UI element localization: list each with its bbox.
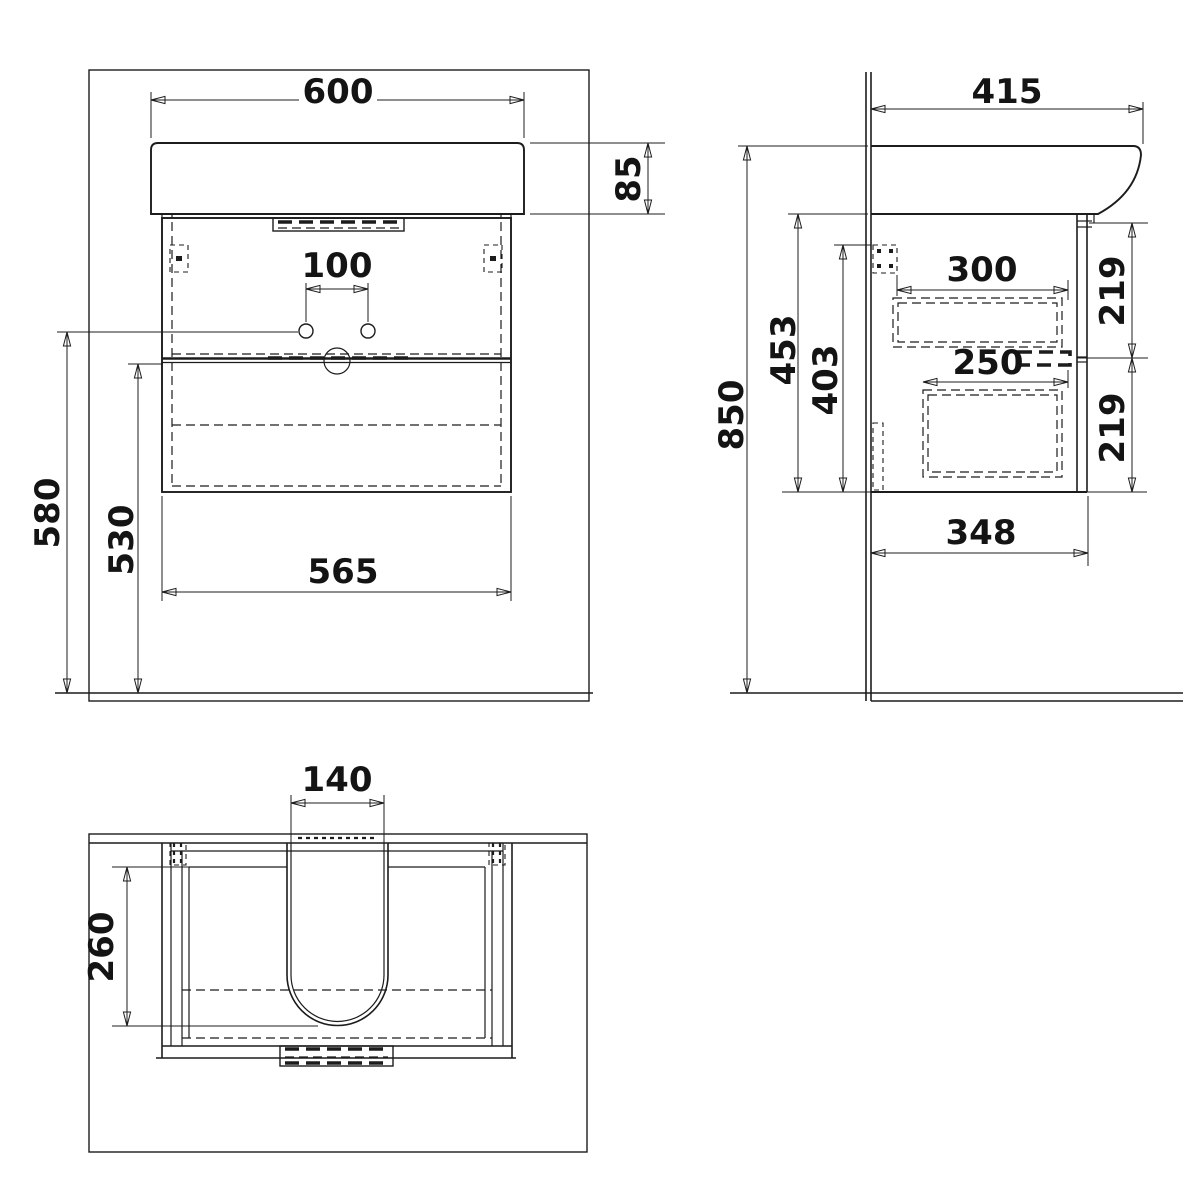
side-basin-outline	[871, 146, 1141, 214]
front-bracket-right	[484, 245, 502, 272]
front-siphon-circle	[324, 348, 350, 374]
dim-side-cabinet-depth: 348	[871, 496, 1088, 566]
side-upper-drawer-hidden	[893, 298, 1062, 347]
drawing-sheet: 600 85 100 580 530	[0, 0, 1200, 1200]
dim-plan-cutout-width: 140	[291, 760, 384, 860]
plan-view: 140 260	[82, 760, 587, 1152]
dim-label-403: 403	[806, 345, 846, 416]
plan-siphon-cutout-inner	[291, 843, 384, 1021]
dim-label-453: 453	[764, 315, 804, 386]
dim-label-530: 530	[102, 505, 142, 576]
front-wall-outline	[89, 70, 589, 701]
dim-side-bracket-height: 403	[806, 245, 871, 492]
dim-label-565: 565	[308, 552, 379, 592]
dim-label-415: 415	[972, 72, 1043, 112]
dim-side-total-height: 850	[712, 146, 868, 693]
side-bracket	[873, 245, 897, 273]
dim-front-basin-width: 600	[151, 72, 524, 138]
dim-label-140: 140	[302, 760, 373, 800]
dim-front-basin-height: 85	[530, 143, 665, 214]
dim-front-cabinet-width: 565	[162, 496, 511, 601]
dim-side-basin-depth: 415	[871, 72, 1143, 144]
dim-label-850: 850	[712, 380, 752, 451]
dim-plan-cutout-depth: 260	[82, 867, 318, 1026]
side-view: 415 850 453 403 300	[712, 72, 1183, 701]
dim-label-348: 348	[946, 513, 1017, 553]
plan-siphon-cutout-outer	[287, 843, 388, 1026]
plan-handle	[280, 1046, 393, 1066]
dim-front-hole-height: 580	[28, 332, 298, 693]
dim-front-gap-height: 530	[102, 364, 162, 693]
technical-drawing: 600 85 100 580 530	[0, 0, 1200, 1200]
dim-label-85: 85	[609, 155, 649, 202]
front-drawer-gap	[162, 348, 511, 374]
dim-label-250: 250	[953, 343, 1024, 383]
side-back-recess-hidden	[873, 423, 883, 490]
front-view: 600 85 100 580 530	[28, 70, 665, 701]
dim-label-100: 100	[302, 246, 373, 286]
dim-label-580: 580	[28, 478, 68, 549]
dim-label-219-lower: 219	[1093, 393, 1133, 464]
dim-label-600: 600	[303, 72, 374, 112]
dim-side-lower-front-height: 219	[1093, 358, 1133, 492]
dim-front-hole-spacing: 100	[302, 246, 373, 322]
dim-label-219-upper: 219	[1093, 256, 1133, 327]
front-faucet-hole-left	[299, 324, 313, 338]
side-lower-handle-hidden	[1018, 352, 1070, 365]
front-faucet-hole-right	[361, 324, 375, 338]
front-basin-outline	[151, 143, 524, 214]
plan-bracket-left	[170, 843, 186, 865]
front-top-handle	[273, 218, 404, 231]
dim-label-300: 300	[947, 250, 1018, 290]
dim-label-260: 260	[82, 912, 122, 983]
front-bracket-left	[170, 245, 188, 272]
dim-side-upper-drawer-depth: 300	[897, 250, 1068, 300]
